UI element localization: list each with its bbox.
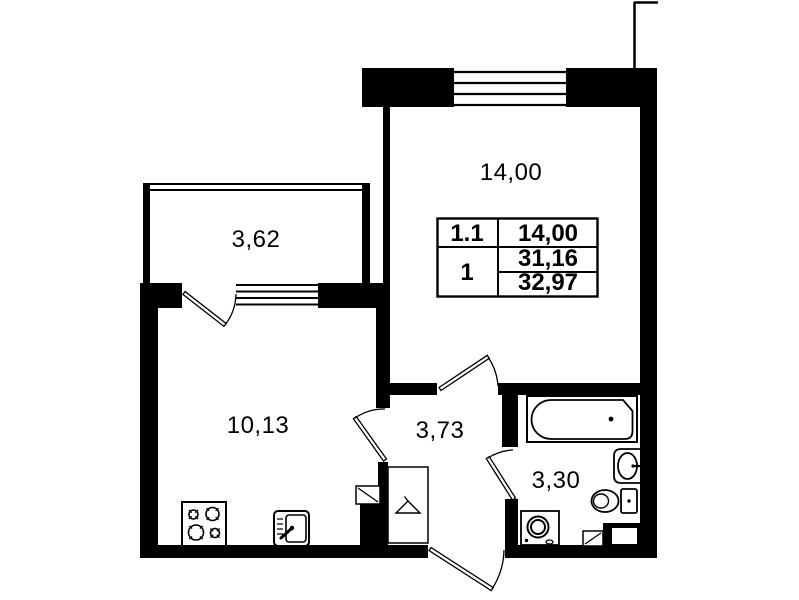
washing-machine-icon (521, 511, 559, 545)
sink-faucet-head (290, 526, 294, 530)
living-room-area-label: 14,00 (480, 159, 543, 186)
bathtub-basin (532, 400, 633, 439)
wall-segment (318, 283, 390, 308)
balcony-area-label: 3,62 (232, 226, 281, 253)
kitchen-sink-icon (274, 511, 309, 546)
window-glass (454, 70, 566, 107)
wall-segment (502, 395, 518, 447)
wall-segment (383, 107, 390, 283)
door-swing-arc (355, 409, 385, 418)
wall-segment (140, 283, 182, 308)
door-living-room (439, 355, 498, 390)
table-living-area: 31,16 (518, 245, 578, 272)
door-leaf (353, 417, 386, 461)
door-leaf (183, 292, 226, 327)
area-table: 1.1 14,00 1 31,16 32,97 (437, 218, 598, 297)
wall-segment (505, 499, 518, 545)
window-living-room (454, 70, 566, 107)
wall-segment (378, 383, 437, 395)
door-bathroom (486, 450, 515, 500)
wall-segment (498, 383, 657, 395)
wardrobe (388, 467, 428, 543)
stove-icon (182, 502, 226, 546)
bathtub-icon (527, 396, 637, 442)
door-swing-arc (492, 550, 504, 589)
door-leaf (486, 457, 515, 500)
wall-segment (140, 305, 158, 558)
door-kitchen-room (353, 409, 386, 461)
door-balcony (183, 292, 236, 327)
door-entrance (429, 547, 504, 590)
toilet-button (627, 499, 630, 502)
bathtub-drain (609, 417, 614, 422)
toilet-bowl-inner (594, 494, 609, 508)
door-swing-arc (488, 357, 498, 386)
wardrobe-outline (388, 467, 428, 543)
wall-segment (640, 68, 657, 557)
shaft-opening (612, 528, 637, 544)
kitchen-area-label: 10,13 (227, 412, 290, 439)
vent-shaft-hall-icon (356, 486, 380, 504)
adjacent-structure-lines (634, 2, 658, 70)
vent-shaft-bath-icon (583, 531, 603, 546)
table-unit-area: 14,00 (518, 220, 578, 247)
stove-body (182, 502, 226, 546)
door-swing-arc (225, 294, 236, 325)
toilet-icon (592, 489, 638, 513)
balcony-right-wall (362, 185, 370, 283)
bathroom-area-label: 3,30 (532, 467, 581, 494)
washbasin-icon (614, 449, 643, 483)
door-leaf (439, 355, 489, 390)
table-apartment-number: 1 (460, 259, 473, 286)
shaft-block (360, 504, 382, 547)
sink-basin (286, 515, 306, 542)
room-labels: 14,00 3,62 10,13 3,73 3,30 (227, 159, 581, 494)
washbasin-tap-dot (631, 464, 634, 467)
washing-machine-detail (546, 540, 553, 544)
floor-plan-drawing: 1.1 14,00 1 31,16 32,97 14,00 3,62 10,13… (0, 0, 799, 600)
hall-area-label: 3,73 (416, 417, 465, 444)
washing-machine-door-inner (531, 520, 545, 534)
door-leaf (429, 547, 493, 590)
door-swing-arc (488, 450, 513, 458)
washing-machine-knob (525, 539, 528, 542)
window-balcony (236, 283, 318, 308)
floor-plan: 1.1 14,00 1 31,16 32,97 14,00 3,62 10,13… (0, 0, 799, 600)
balcony-railing (143, 184, 370, 190)
wall-segment (362, 68, 454, 107)
table-unit-number: 1.1 (450, 220, 483, 247)
table-total-area: 32,97 (518, 269, 578, 296)
